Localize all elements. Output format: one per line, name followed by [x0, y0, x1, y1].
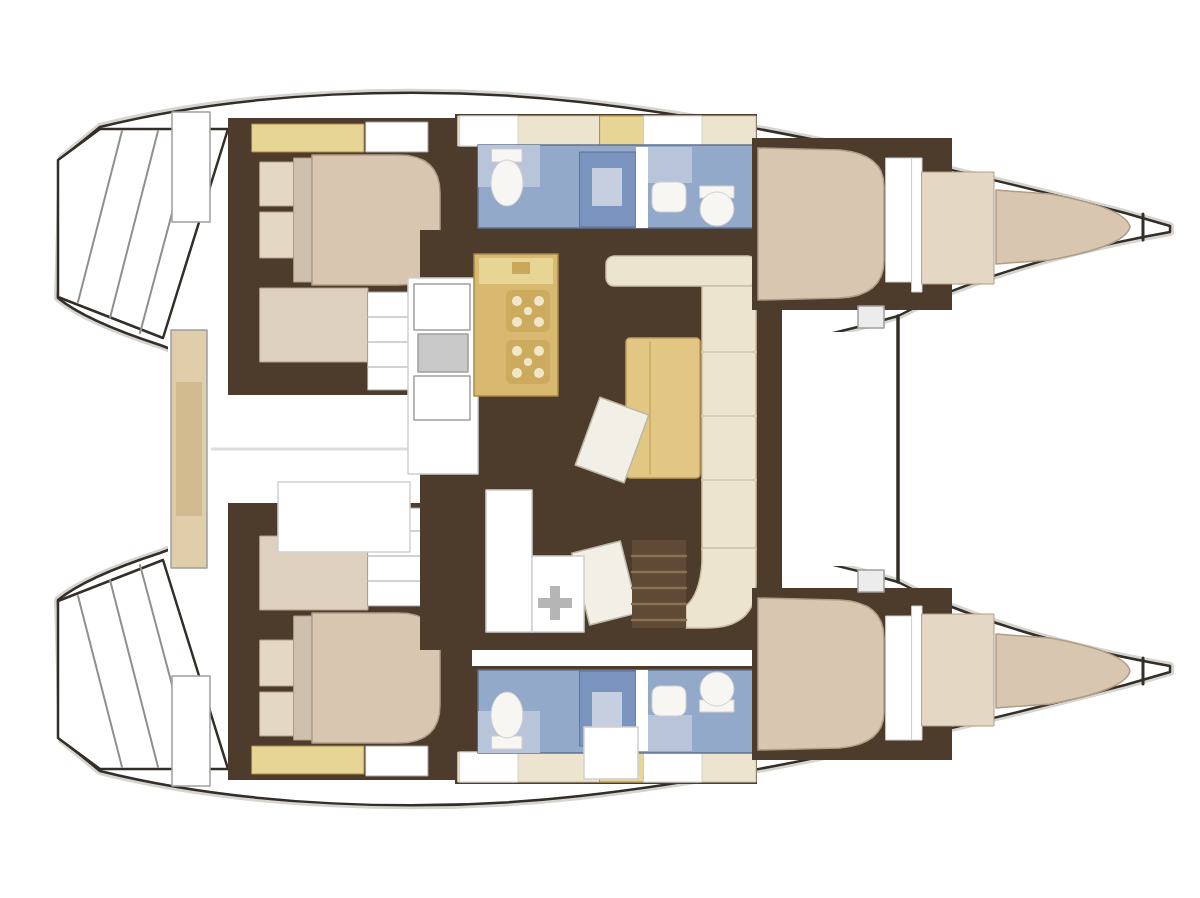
fwd-cabin-port-bulkhead: [912, 158, 922, 292]
aft-cabin-port-lockers: [366, 122, 428, 152]
stern-locker-port: [172, 112, 210, 222]
fwd-cabin-port-bed: [758, 148, 884, 300]
head-port-fwd-sink: [652, 182, 686, 212]
catamaran-floorplan-svg: [0, 0, 1200, 898]
burner-a-3: [512, 317, 522, 327]
burner-b-4: [534, 368, 544, 378]
deck-hatch-starboard: [858, 570, 884, 592]
head-starboard-fwd-toilet-bowl: [700, 672, 734, 706]
aft-cabin-port-wardrobe: [252, 124, 364, 152]
head-starboard-fwd-sink: [652, 686, 686, 716]
head-starboard-cabinet-white-a: [460, 752, 518, 782]
burner-a-4: [534, 317, 544, 327]
fwd-cabin-port-pillows: [886, 158, 912, 282]
burner-b-2: [534, 346, 544, 356]
dinette-table: [626, 338, 700, 478]
head-starboard-shower-tray: [592, 692, 622, 730]
chart-counter-vertical: [486, 490, 532, 632]
fwd-cabin-starboard-bed: [758, 598, 884, 750]
head-port-fwd-floor-light: [648, 147, 692, 183]
cockpit-aft-bench-pad: [176, 382, 202, 516]
burner-a-center: [524, 307, 532, 315]
deck-hatch-port: [858, 306, 884, 328]
fwd-cabin-starboard-pillows: [886, 616, 912, 740]
head-port-partition: [636, 147, 648, 228]
head-starboard-cabinet-white-b: [644, 752, 702, 782]
head-port-cabinet-white-a: [460, 116, 518, 146]
aft-cabin-port-shelf-a: [260, 162, 294, 206]
burner-b-3: [512, 368, 522, 378]
burner-b-center: [524, 358, 532, 366]
aft-cabin-starboard-lockers: [366, 746, 428, 776]
aft-cabin-port-shelf-b: [260, 212, 294, 258]
galley-appliance: [418, 334, 468, 372]
forepeak-starboard-berth: [996, 634, 1130, 708]
head-port-cabinet-gold: [600, 116, 644, 146]
head-port-toilet-bowl: [491, 160, 523, 206]
head-port-cabinet-white-b: [644, 116, 702, 146]
aft-cabin-starboard-berth-hatch: [278, 482, 410, 552]
forepeak-port-seat: [922, 172, 994, 284]
burner-a-2: [534, 296, 544, 306]
dinette-sofa-back: [606, 256, 756, 286]
fwd-cabin-starboard-bulkhead: [912, 606, 922, 740]
aft-cabin-port-bench: [260, 288, 368, 362]
floor-hatch-cross-v: [550, 586, 560, 620]
forepeak-starboard-seat: [922, 614, 994, 726]
catamaran-floorplan-image: [0, 0, 1200, 898]
head-starboard-toilet-bowl: [491, 692, 523, 738]
galley-fridge: [414, 284, 470, 330]
stern-locker-starboard: [172, 676, 210, 786]
dinette-sofa-side: [702, 286, 756, 550]
burner-b-1: [512, 346, 522, 356]
forepeak-port-berth: [996, 190, 1130, 264]
companionway-door-starboard: [584, 727, 638, 779]
aft-cabin-starboard-wardrobe: [252, 746, 364, 774]
galley-stove-knob: [512, 262, 530, 274]
aft-cabin-starboard-shelf-a: [260, 692, 294, 736]
head-starboard-fwd-floor-light: [648, 715, 692, 751]
aft-cabin-starboard-shelf-b: [260, 640, 294, 686]
aft-cabin-starboard-headboard: [294, 616, 312, 740]
head-port-shower-tray: [592, 168, 622, 206]
companionway-stairs-starboard-floor: [632, 540, 686, 628]
aft-cabin-port-headboard: [294, 158, 312, 282]
burner-a-1: [512, 296, 522, 306]
galley-cabinet: [414, 376, 470, 420]
head-port-fwd-toilet-bowl: [700, 192, 734, 226]
